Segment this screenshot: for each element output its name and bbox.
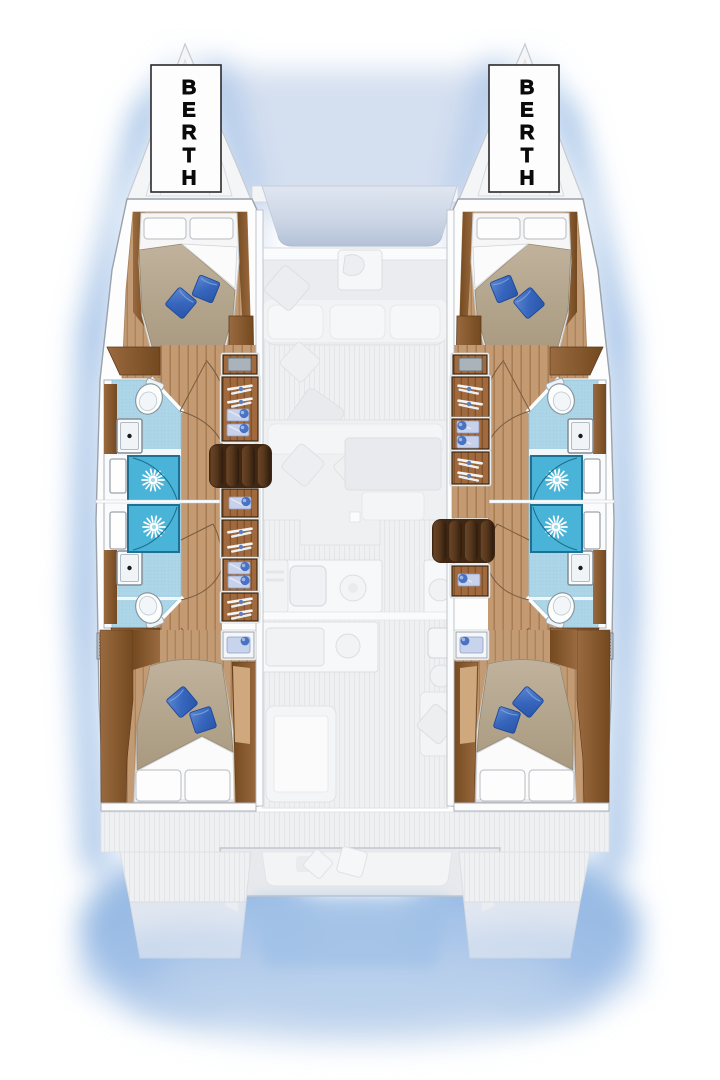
svg-text:T: T: [521, 144, 534, 167]
svg-text:R: R: [182, 121, 197, 144]
svg-text:E: E: [182, 99, 196, 122]
svg-text:B: B: [520, 76, 535, 99]
svg-text:H: H: [520, 166, 535, 189]
svg-text:H: H: [182, 166, 197, 189]
svg-text:R: R: [520, 121, 535, 144]
svg-text:B: B: [182, 76, 197, 99]
svg-text:E: E: [520, 99, 534, 122]
svg-text:T: T: [183, 144, 196, 167]
